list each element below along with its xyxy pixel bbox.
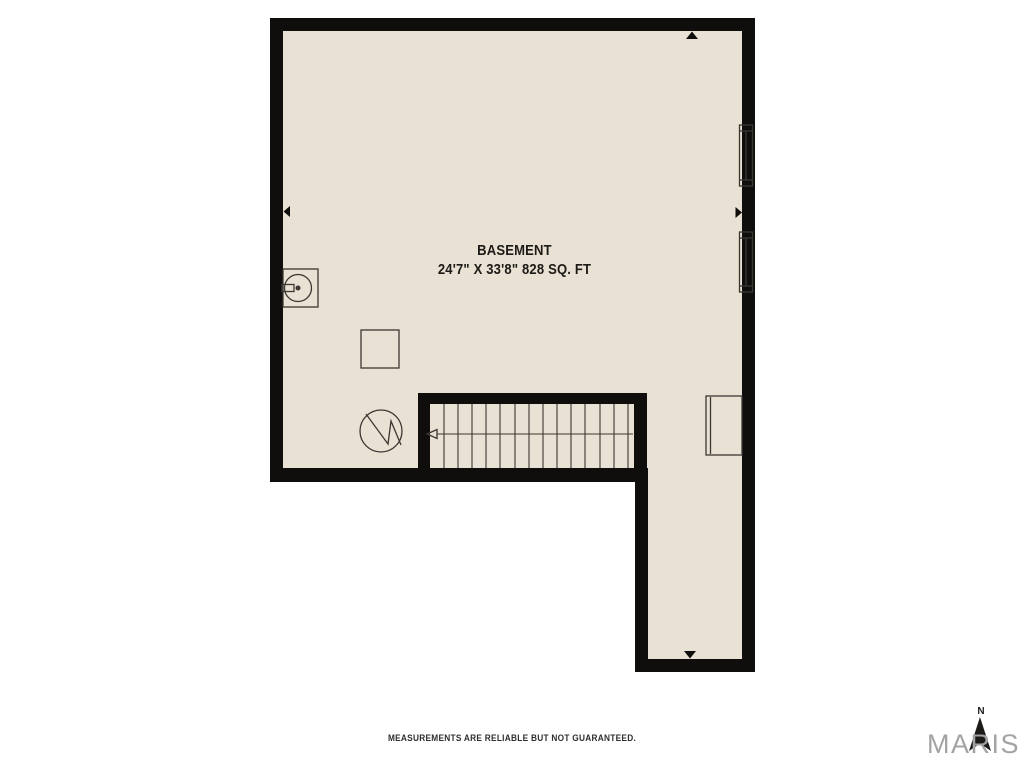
stair-wall-left [418,393,430,468]
maris-logo: MARIS [927,729,1020,760]
sink-drain-dot [296,286,301,291]
floor-area [283,31,742,659]
stair-wall-right [634,404,647,468]
floorplan-page: BASEMENT 24'7" X 33'8" 828 SQ. FT MEASUR… [0,0,1024,768]
room-dimensions: 24'7" X 33'8" 828 SQ. FT [382,260,647,279]
stair-wall-top [418,393,647,404]
room-label: BASEMENT [382,241,647,260]
room-label-block: BASEMENT 24'7" X 33'8" 828 SQ. FT [382,241,647,279]
disclaimer-text: MEASUREMENTS ARE RELIABLE BUT NOT GUARAN… [282,733,742,743]
north-label: N [974,706,988,717]
floor-plan [0,0,1024,768]
